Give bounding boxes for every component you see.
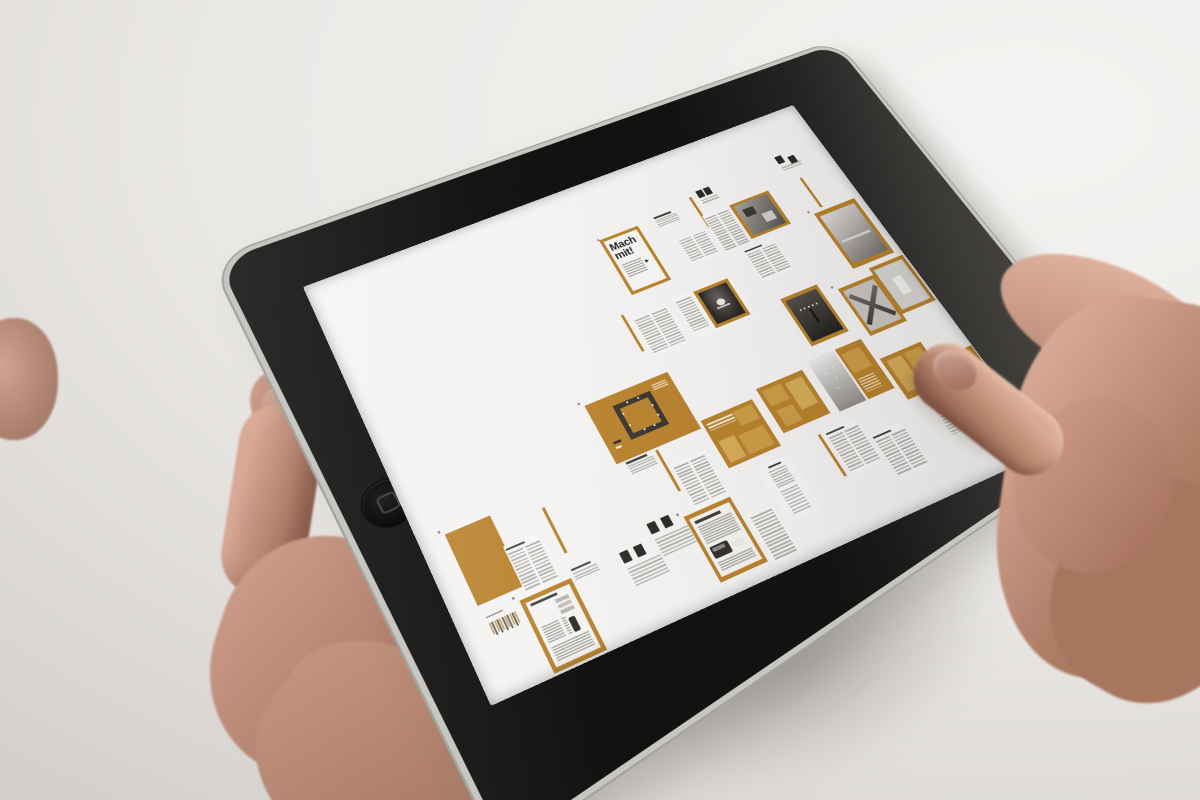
photo-scene: Mach mit!	[0, 0, 1200, 800]
right-hand	[0, 0, 1200, 800]
